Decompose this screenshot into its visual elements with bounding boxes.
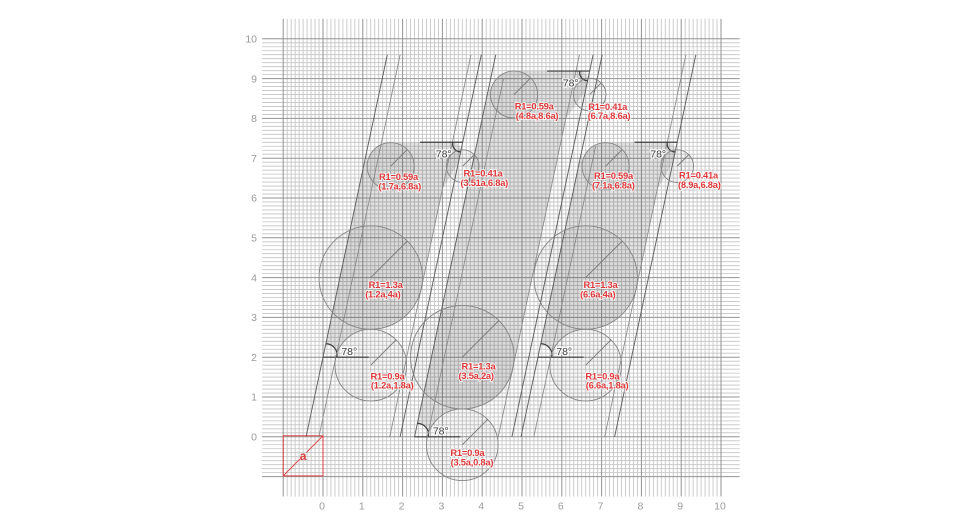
svg-text:0: 0	[319, 500, 325, 512]
svg-text:78°: 78°	[563, 77, 579, 89]
svg-text:78°: 78°	[650, 149, 666, 161]
svg-text:(6.6a,1.8a): (6.6a,1.8a)	[586, 380, 629, 391]
svg-text:5: 5	[251, 233, 257, 245]
svg-text:8: 8	[637, 500, 643, 512]
svg-text:2: 2	[251, 352, 257, 364]
svg-text:7: 7	[598, 500, 604, 512]
svg-text:(3.5a,2a): (3.5a,2a)	[459, 370, 494, 381]
svg-text:78°: 78°	[436, 149, 452, 161]
svg-text:(7.1a,6.8a): (7.1a,6.8a)	[592, 180, 635, 191]
svg-text:5: 5	[518, 500, 524, 512]
svg-text:(4.8a,8.6a): (4.8a,8.6a)	[516, 110, 559, 121]
svg-text:9: 9	[677, 500, 683, 512]
svg-text:6: 6	[251, 193, 257, 205]
svg-text:8: 8	[251, 113, 257, 125]
svg-text:(8.9a,6.8a): (8.9a,6.8a)	[678, 179, 721, 190]
svg-text:(1.7a,6.8a): (1.7a,6.8a)	[378, 180, 421, 191]
svg-text:(3.5a,0.8a): (3.5a,0.8a)	[451, 457, 494, 468]
svg-text:2: 2	[399, 500, 405, 512]
svg-text:(1.2a,1.8a): (1.2a,1.8a)	[371, 380, 414, 391]
svg-text:4: 4	[478, 500, 484, 512]
svg-text:(3.51a,6.8a): (3.51a,6.8a)	[461, 177, 509, 188]
svg-text:10: 10	[245, 34, 257, 46]
svg-text:7: 7	[251, 153, 257, 165]
svg-text:(1.2a,4a): (1.2a,4a)	[365, 289, 400, 300]
svg-text:1: 1	[359, 500, 365, 512]
svg-text:3: 3	[438, 500, 444, 512]
svg-text:78°: 78°	[556, 346, 572, 358]
svg-text:0: 0	[251, 432, 257, 444]
svg-text:10: 10	[714, 500, 726, 512]
svg-text:78°: 78°	[341, 346, 357, 358]
svg-text:3: 3	[251, 312, 257, 324]
svg-text:4: 4	[251, 272, 257, 284]
svg-text:a: a	[300, 449, 307, 463]
svg-text:9: 9	[251, 73, 257, 85]
svg-text:(6.7a,8.6a): (6.7a,8.6a)	[588, 110, 631, 121]
svg-text:78°: 78°	[433, 426, 449, 438]
svg-text:6: 6	[558, 500, 564, 512]
svg-text:(6.6a,4a): (6.6a,4a)	[580, 289, 615, 300]
svg-text:1: 1	[251, 392, 257, 404]
